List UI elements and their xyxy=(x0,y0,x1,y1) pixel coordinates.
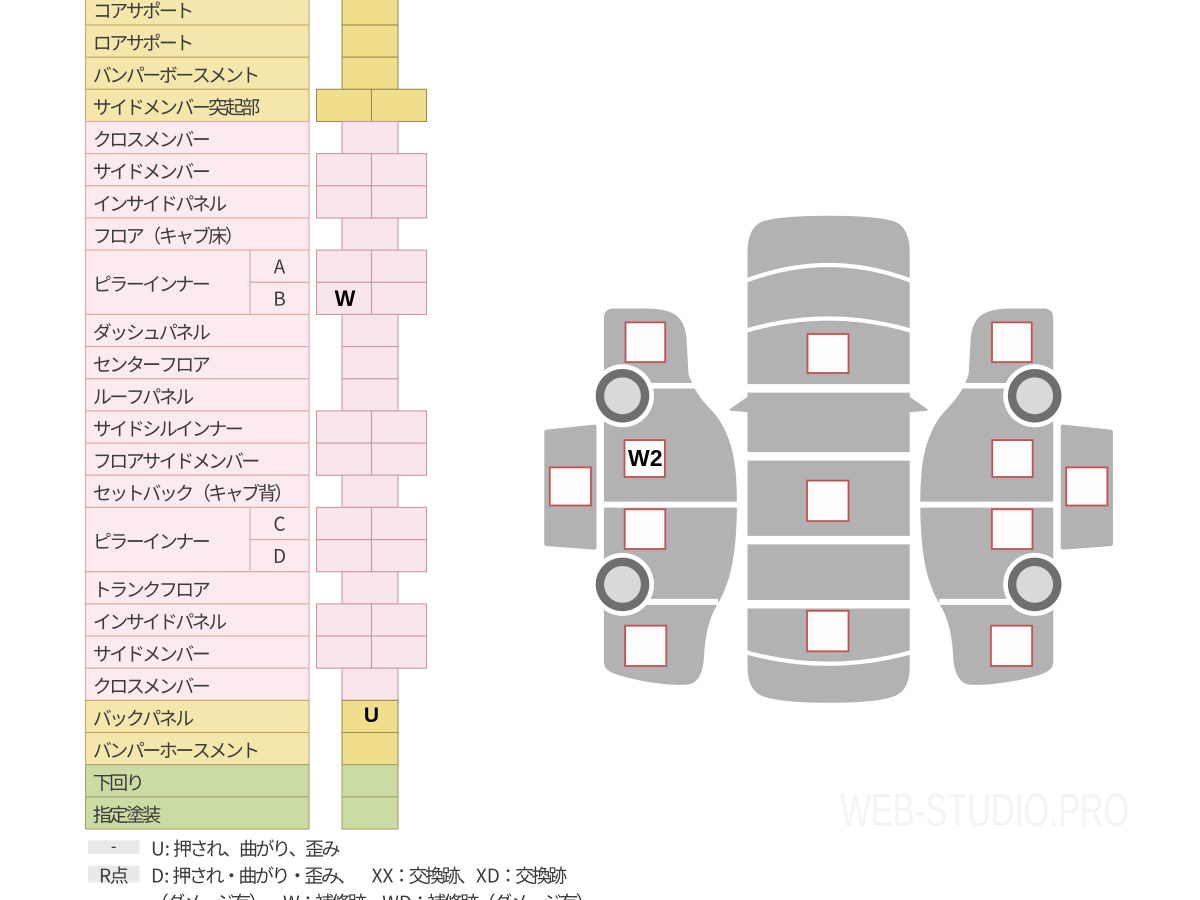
svg-text:-: - xyxy=(111,837,117,856)
svg-text:WEB-STUDIO.PRO: WEB-STUDIO.PRO xyxy=(840,784,1129,836)
svg-text:U: U xyxy=(364,704,379,727)
svg-text:W: W xyxy=(335,286,356,311)
svg-text:W2: W2 xyxy=(628,445,663,471)
